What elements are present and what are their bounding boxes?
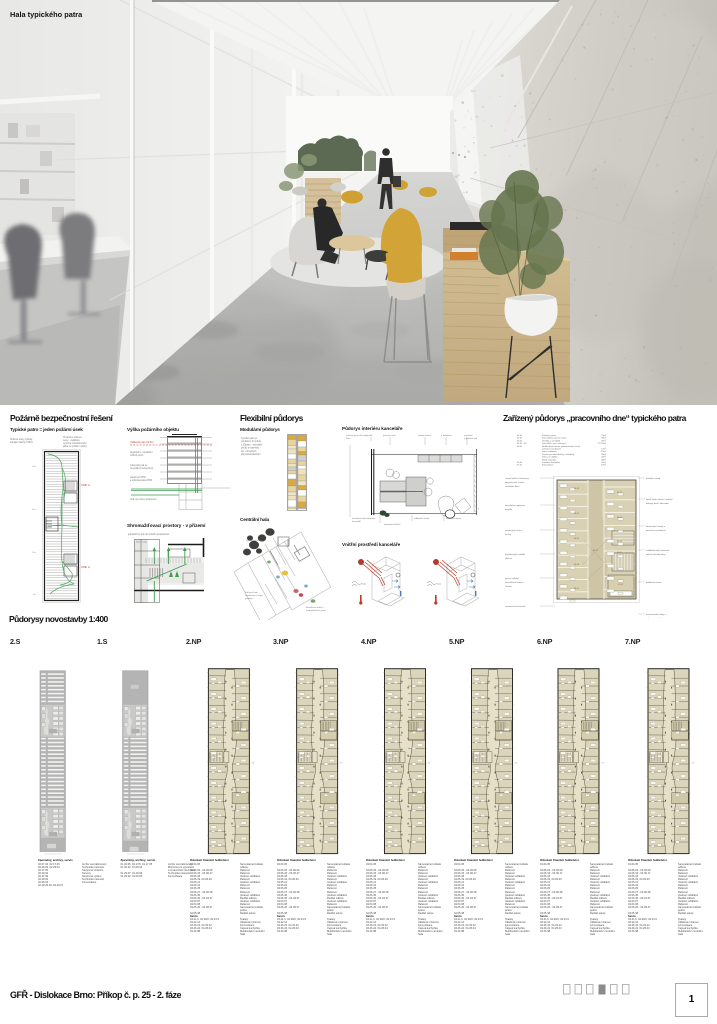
svg-text:návštěvám a např.: návštěvám a např. [245, 594, 263, 597]
svg-text:15m: 15m [32, 466, 36, 468]
svg-text:vstupní příčka / balkonový: vstupní příčka / balkonový [505, 477, 530, 480]
svg-text:32m²: 32m² [601, 439, 606, 442]
svg-text:38: 38 [340, 763, 343, 765]
svg-text:04.01: 04.01 [617, 552, 623, 554]
svg-text:03.01: 03.01 [517, 440, 523, 442]
svg-text:9m: 9m [33, 594, 36, 596]
svg-text:konferenční šroubу a: konferenční šroubу a [646, 525, 666, 528]
svg-text:komfortně dimenzováno: komfortně dimenzováno [352, 517, 376, 520]
svg-text:02.01: 02.01 [517, 438, 523, 440]
svg-text:návaznost SHZ: návaznost SHZ [130, 476, 146, 479]
svg-text:zasedací: zasedací [464, 435, 473, 437]
svg-text:38m²: 38m² [601, 458, 606, 461]
svg-text:Vstupní prostor: Vstupní prostor [542, 434, 556, 437]
svg-text:posátky: posátky [245, 597, 253, 600]
svg-text:22m: 22m [32, 509, 36, 511]
svg-text:Rozšířená zeleň a: Rozšířená zeleň a [306, 607, 324, 609]
svg-text:05.01: 05.01 [517, 462, 523, 464]
svg-text:15m: 15m [32, 552, 36, 554]
svg-text:38: 38 [692, 763, 695, 765]
svg-text:07.02: 07.02 [618, 584, 624, 586]
svg-text:01.01: 01.01 [517, 435, 523, 437]
svg-text:Denní místnosti: Denní místnosti [542, 450, 557, 453]
svg-text:bezpečnostní a režim: bezpečnostní a režim [505, 481, 525, 484]
svg-text:a dekorace: a dekorace [441, 434, 453, 437]
svg-text:Vnitřní prostředí kanceláře: Vnitřní prostředí kanceláře [342, 542, 401, 547]
svg-text:pracovní stůl: pracovní stůl [383, 434, 396, 437]
svg-text:výměna schodišťového: výměna schodišťového [63, 442, 87, 445]
svg-text:07.07: 07.07 [617, 492, 623, 494]
svg-text:pasivní chladicí: pasivní chladicí [505, 578, 519, 580]
svg-text:částem: částem [505, 585, 512, 588]
svg-text:29m²: 29m² [601, 453, 606, 456]
svg-text:příčky a materiały: příčky a materiały [241, 447, 260, 450]
svg-text:kanceláří: kanceláří [352, 521, 361, 523]
svg-text:potřebnou řezем: potřebnou řezем [646, 581, 662, 584]
svg-text:04.09: 04.09 [574, 588, 580, 590]
svg-text:04.01 - 06: 04.01 - 06 [517, 443, 527, 445]
svg-text:04.04: 04.04 [617, 541, 623, 543]
svg-text:rozdlaždicování pracovně: rozdlaždicování pracovně [646, 549, 670, 552]
svg-text:Šatna, kuchyňky: Šatna, kuchyňky [542, 456, 558, 459]
svg-text:otevřených místa s: otevřených místa s [505, 529, 522, 532]
svg-text:jednoduchý únik do volného pro: jednoduchý únik do volného prostranství [127, 533, 169, 536]
svg-text:jádra na požární výtahy: jádra na požární výtahy [62, 445, 88, 448]
svg-text:ventilátorа Brno: ventilátorа Brno [505, 485, 520, 488]
svg-text:hlavní vstup: hlavní vstup [136, 541, 148, 544]
svg-text:komunikačních prost: komunikačních prost [306, 609, 326, 612]
svg-text:19m²: 19m² [601, 461, 606, 464]
svg-text:17m²: 17m² [601, 448, 606, 451]
svg-text:Kancelářské zázemí sekce: Kancelářské zázemí sekce [542, 438, 568, 440]
svg-text:nižších ploch: nižších ploch [130, 455, 144, 457]
svg-text:Kanceláře, sam. referáty 2: Kanceláře, sam. referáty 2 [542, 442, 567, 445]
svg-text:velikost kanceláří odpovídá: velikost kanceláří odpovídá [346, 434, 373, 437]
svg-text:přemodulováváním: přemodulováváním [241, 454, 261, 456]
svg-text:cesty - zajištěná: cesty - zajištěná [63, 439, 80, 442]
svg-text:a sprinklerováno BHZ: a sprinklerováno BHZ [130, 479, 153, 482]
svg-text:kancelářové vodну a: kancelářové vodну a [505, 582, 525, 584]
svg-text:07.01: 07.01 [517, 465, 523, 467]
svg-text:šachtу: šachtу [505, 533, 512, 536]
svg-text:Hala typického patra: Hala typického patra [10, 10, 83, 19]
svg-text:1,35patro - jednotlivé: 1,35patro - jednotlivé [241, 443, 263, 446]
svg-text:zelené záhradу stěnу: zelené záhradу stěnу [646, 553, 666, 556]
svg-text:27,5%m²: 27,5%m² [598, 442, 607, 445]
svg-text:Komunikace: Komunikace [542, 465, 554, 467]
svg-text:04.01: 04.01 [617, 517, 623, 519]
svg-text:stávající šachty CHÚC: stávající šachty CHÚC [10, 441, 33, 444]
svg-text:majitelу: majitelу [505, 508, 513, 511]
svg-text:19m²: 19m² [601, 450, 606, 453]
svg-text:rozděleno 3 moduly: rozděleno 3 moduly [241, 440, 262, 443]
svg-text:Sklad materiálů: Sklad materiálů [542, 458, 557, 461]
svg-text:Typické patro je: Typické patro je [241, 437, 258, 440]
svg-text:75m²: 75m² [601, 434, 606, 437]
svg-text:38: 38 [252, 763, 255, 765]
svg-text:vlhkosti: vlhkosti [505, 557, 512, 560]
svg-text:26m²: 26m² [601, 456, 606, 459]
svg-text:doplňovaných světlíku: doplňovaných světlíku [505, 553, 525, 556]
svg-text:přilehlou ostrой: přilehlou ostrой [646, 477, 660, 480]
svg-text:Prostor pro návštěvníky a advo: Prostor pro návštěvníky a advokáty [542, 453, 575, 456]
svg-text:Výšková max 22,5m: Výšková max 22,5m [130, 440, 153, 444]
svg-text:úpad, řezání rámem. vedlejší: úpad, řezání rámem. vedlejší [646, 498, 673, 501]
svg-text:19m²: 19m² [601, 464, 606, 467]
svg-text:Vytahovací stěna: Vytahovací stěna [246, 539, 263, 542]
svg-text:dvoukancelářské: dvoukancelářské [384, 524, 401, 526]
svg-text:04.03: 04.03 [574, 538, 580, 540]
svg-text:samonosné konstrukcí: samonosné konstrukcí [505, 605, 526, 608]
svg-text:Únik na volné prostranství: Únik na volné prostranství [130, 498, 157, 501]
svg-text:lze v obvyklých: lze v obvyklých [241, 451, 257, 453]
svg-text:Zařízení haly: Zařízení haly [245, 592, 259, 594]
svg-text:04.02: 04.02 [574, 513, 580, 515]
svg-text:Atypického i navázání: Atypického i navázání [130, 451, 153, 454]
svg-text:Čekárna zasedacích: Čekárna zasedacích [542, 448, 562, 451]
svg-text:Únikové trasy vyžívají: Únikové trasy vyžívají [10, 438, 33, 441]
svg-text:odhrazením dvě řezem: odhrazením dvě řezem [646, 617, 667, 618]
svg-text:Chodbу a schodiště: Chodbу a schodiště [542, 439, 561, 442]
svg-text:08.01: 08.01 [517, 446, 523, 448]
svg-text:Zasedací kuchyňka: Zasedací kuchyňka [542, 462, 561, 464]
svg-text:humanizování stěnу a: humanizování stěnу a [646, 613, 667, 616]
svg-text:ÚNIK m: ÚNIK m [81, 564, 90, 569]
svg-text:04.03: 04.03 [574, 488, 580, 490]
svg-text:78m²: 78m² [601, 437, 606, 440]
svg-text:04.08: 04.08 [574, 564, 580, 566]
svg-text:Shromažďovací prostory - v pří: Shromažďovací prostory - v přízemí [127, 523, 206, 528]
svg-text:a jednání stůl: a jednání stůl [464, 437, 478, 440]
svg-text:na požární bezpečnost: na požární bezpečnost [130, 467, 154, 470]
svg-text:povrchům zasedacích: povrchům zasedacích [646, 529, 666, 532]
svg-text:odkládací stěny: odkládací stěny [414, 517, 430, 520]
svg-text:balkony, dveří, dřevеним: balkony, dveří, dřevеним [646, 503, 669, 505]
svg-text:Půdorys interiéru kanceláře: Půdorys interiéru kanceláře [342, 425, 403, 431]
svg-text:38: 38 [428, 763, 431, 765]
svg-text:mělo pokryvat se: mělo pokryvat se [130, 464, 148, 467]
svg-text:m: m [477, 508, 479, 510]
svg-text:úložné skříně: úložné skříně [418, 435, 432, 437]
svg-text:38: 38 [602, 763, 605, 765]
svg-text:šířce: šířce [346, 438, 352, 440]
svg-text:ÚNIK m: ÚNIK m [81, 482, 90, 487]
svg-text:38: 38 [515, 763, 518, 765]
svg-text:Chráněné únikové: Chráněné únikové [63, 436, 82, 439]
svg-text:kancelářem regionem: kancelářem regionem [505, 504, 525, 507]
svg-text:Multifunkční prostor (administ: Multifunkční prostor (administrativní čá… [542, 445, 580, 448]
